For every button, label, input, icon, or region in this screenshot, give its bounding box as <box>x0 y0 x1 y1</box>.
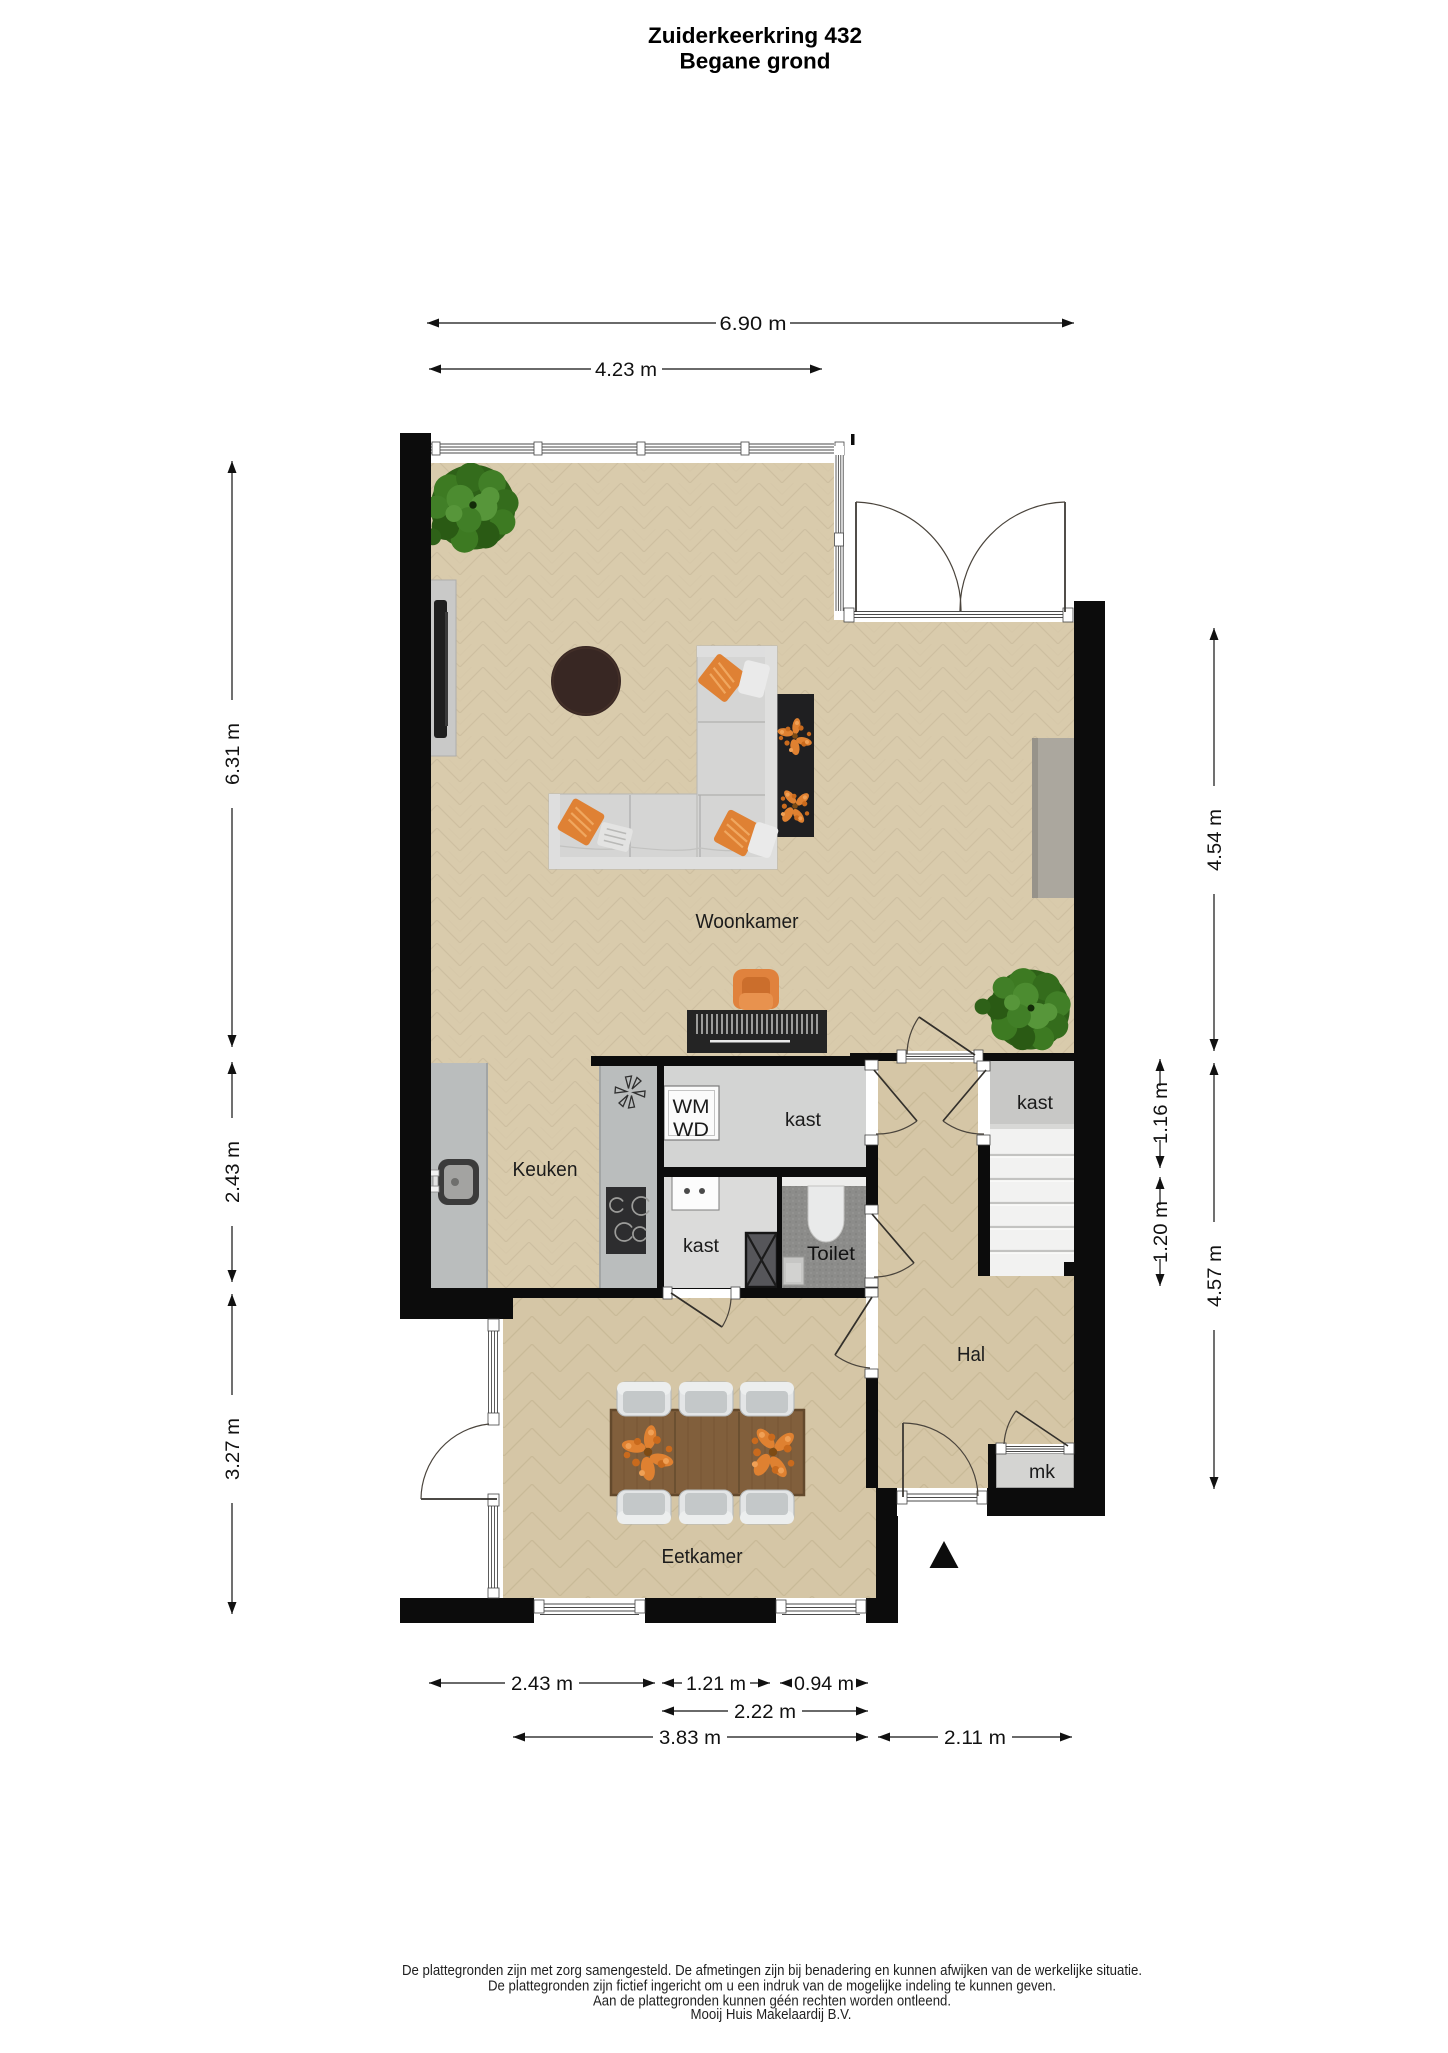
svg-text:4.57 m: 4.57 m <box>1205 1245 1226 1307</box>
svg-text:Woonkamer: Woonkamer <box>696 911 799 933</box>
svg-text:2.22 m: 2.22 m <box>734 1702 796 1723</box>
svg-text:mk: mk <box>1029 1462 1056 1483</box>
svg-text:2.11 m: 2.11 m <box>944 1728 1006 1749</box>
svg-text:kast: kast <box>785 1110 822 1131</box>
svg-text:2.43 m: 2.43 m <box>223 1141 244 1203</box>
svg-text:Eetkamer: Eetkamer <box>662 1546 743 1568</box>
svg-text:Mooij Huis Makelaardij B.V.: Mooij Huis Makelaardij B.V. <box>691 2006 852 2023</box>
svg-text:Toilet: Toilet <box>807 1244 856 1265</box>
svg-text:Begane grond: Begane grond <box>680 49 831 74</box>
svg-text:WD: WD <box>673 1120 709 1141</box>
svg-text:kast: kast <box>683 1236 720 1257</box>
svg-text:6.31 m: 6.31 m <box>223 723 244 785</box>
svg-text:1.20 m: 1.20 m <box>1151 1201 1172 1263</box>
svg-text:6.90 m: 6.90 m <box>720 314 787 335</box>
svg-text:1.21 m: 1.21 m <box>686 1674 746 1695</box>
svg-text:4.54 m: 4.54 m <box>1205 809 1226 871</box>
svg-text:4.23 m: 4.23 m <box>595 360 657 381</box>
svg-text:De plattegronden zijn met zorg: De plattegronden zijn met zorg samengest… <box>402 1962 1142 1979</box>
svg-text:0.94 m: 0.94 m <box>794 1674 854 1695</box>
svg-text:WM: WM <box>673 1097 710 1118</box>
svg-text:3.83 m: 3.83 m <box>659 1728 721 1749</box>
svg-text:3.27 m: 3.27 m <box>223 1418 244 1480</box>
svg-text:Hal: Hal <box>957 1344 985 1366</box>
svg-text:Zuiderkeerkring 432: Zuiderkeerkring 432 <box>648 23 862 48</box>
svg-text:kast: kast <box>1017 1093 1054 1114</box>
svg-text:1.16 m: 1.16 m <box>1151 1082 1172 1144</box>
svg-text:Keuken: Keuken <box>513 1159 578 1181</box>
svg-text:2.43 m: 2.43 m <box>511 1674 573 1695</box>
